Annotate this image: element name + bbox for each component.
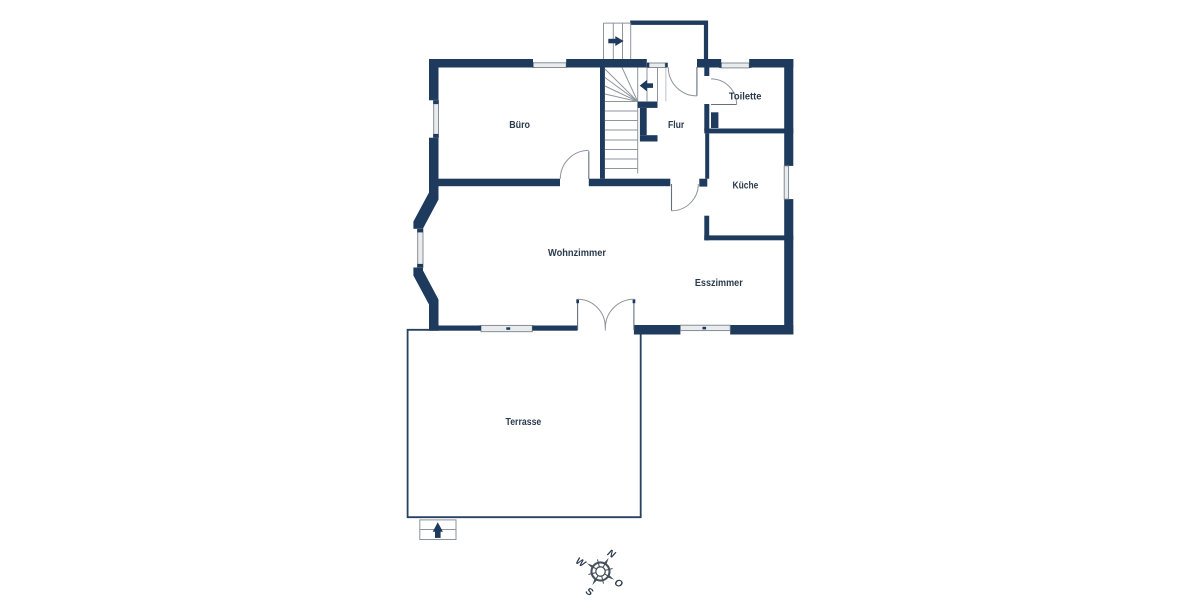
- svg-text:Büro: Büro: [509, 120, 530, 131]
- svg-text:Küche: Küche: [733, 181, 759, 192]
- svg-text:Flur: Flur: [668, 120, 684, 131]
- svg-text:Terrasse: Terrasse: [506, 417, 542, 428]
- svg-text:Esszimmer: Esszimmer: [695, 278, 743, 289]
- svg-text:Wohnzimmer: Wohnzimmer: [548, 248, 606, 259]
- svg-text:Toilette: Toilette: [729, 91, 762, 102]
